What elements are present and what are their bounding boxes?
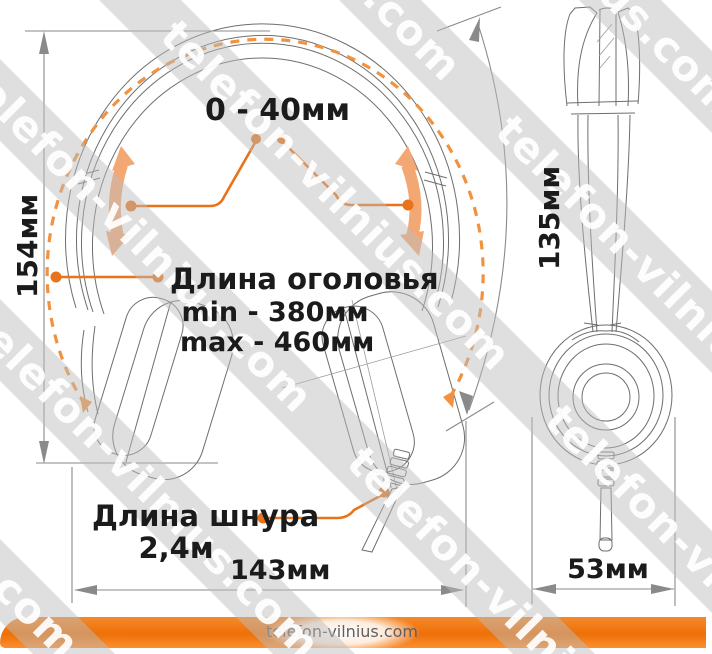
product-dimension-diagram: telefon-vilnius.comtelefon-vilnius.com t… [0, 0, 712, 654]
label-boom-range: 0 - 40мм [205, 93, 340, 128]
label-front-height: 154мм [11, 208, 37, 298]
label-side-height: 135мм [533, 180, 559, 270]
side-cord [597, 452, 615, 551]
label-cord-title: Длина шнура [92, 499, 260, 533]
label-front-width: 143мм [230, 555, 326, 586]
label-headband-title: Длина оголовья [170, 262, 439, 296]
label-side-width: 53мм [564, 554, 652, 585]
side-view-drawing [540, 7, 672, 551]
front-cord [383, 448, 411, 486]
label-headband-min: min - 380мм [180, 297, 370, 328]
label-headband-max: max - 460мм [180, 327, 370, 358]
footer-text: telefon-vilnius.com [262, 622, 422, 641]
